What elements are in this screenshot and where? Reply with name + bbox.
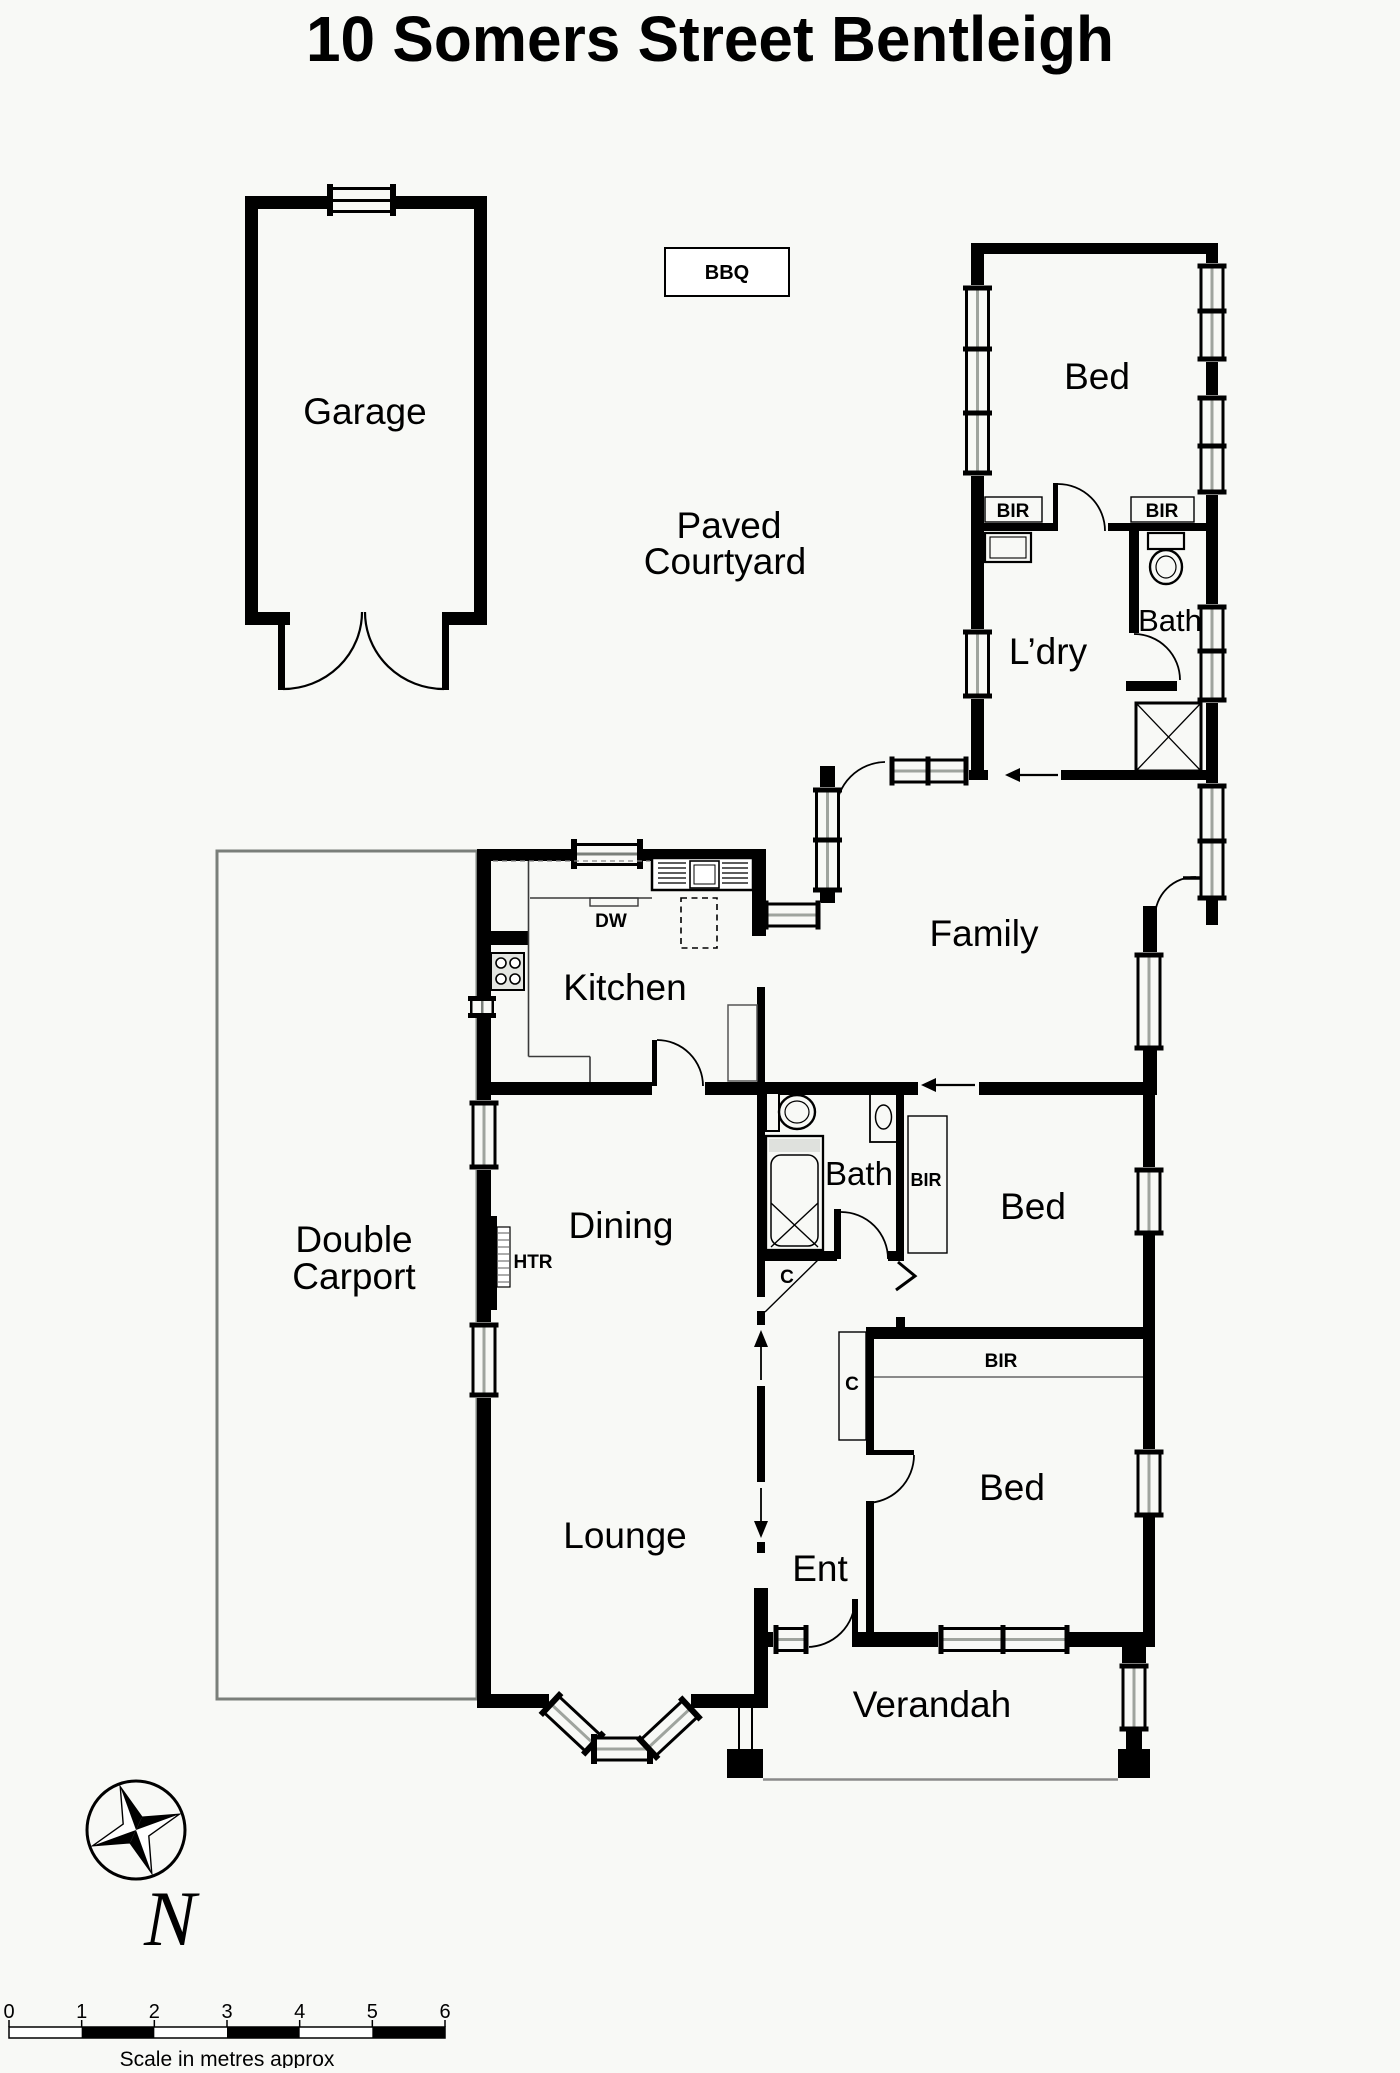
- svg-text:Courtyard: Courtyard: [644, 541, 806, 582]
- svg-text:BIR: BIR: [997, 501, 1030, 522]
- svg-text:BBQ: BBQ: [705, 262, 749, 284]
- svg-text:2: 2: [149, 2001, 160, 2023]
- svg-text:6: 6: [439, 2001, 450, 2023]
- svg-text:Ent: Ent: [792, 1548, 848, 1589]
- svg-text:C: C: [845, 1374, 859, 1395]
- svg-text:Bed: Bed: [1000, 1186, 1066, 1227]
- svg-text:Garage: Garage: [303, 391, 426, 432]
- svg-text:Carport: Carport: [292, 1256, 416, 1297]
- svg-text:L’dry: L’dry: [1009, 631, 1088, 672]
- svg-text:Bed: Bed: [1064, 356, 1130, 397]
- svg-text:0: 0: [3, 2001, 14, 2023]
- svg-text:BIR: BIR: [1146, 501, 1179, 522]
- svg-text:Scale in metres approx: Scale in metres approx: [120, 2048, 335, 2068]
- svg-text:Bath: Bath: [825, 1155, 893, 1192]
- svg-text:Family: Family: [930, 913, 1039, 954]
- svg-text:Bath: Bath: [1138, 603, 1202, 638]
- svg-text:10 Somers Street Bentleigh: 10 Somers Street Bentleigh: [306, 3, 1114, 75]
- svg-text:BIR: BIR: [911, 1170, 942, 1190]
- svg-text:3: 3: [221, 2001, 232, 2023]
- svg-text:Lounge: Lounge: [563, 1515, 686, 1556]
- svg-text:BIR: BIR: [985, 1351, 1018, 1372]
- svg-text:C: C: [780, 1267, 794, 1288]
- svg-text:Bed: Bed: [979, 1467, 1045, 1508]
- svg-text:N: N: [143, 1875, 200, 1962]
- svg-text:Verandah: Verandah: [853, 1684, 1011, 1725]
- svg-text:Double: Double: [295, 1219, 412, 1260]
- svg-text:Paved: Paved: [677, 505, 782, 546]
- svg-text:DW: DW: [595, 911, 627, 932]
- svg-text:Dining: Dining: [569, 1205, 674, 1246]
- svg-text:5: 5: [367, 2001, 378, 2023]
- svg-text:HTR: HTR: [513, 1252, 552, 1273]
- svg-text:4: 4: [294, 2001, 305, 2023]
- svg-text:1: 1: [76, 2001, 87, 2023]
- svg-text:Kitchen: Kitchen: [563, 967, 686, 1008]
